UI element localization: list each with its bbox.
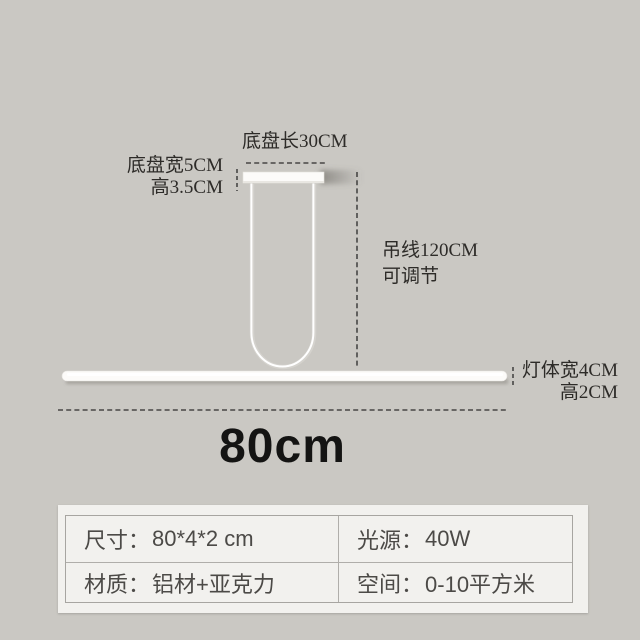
spec-light-source-value: 40W [425, 526, 470, 552]
spec-material-value: 铝材+亚克力 [152, 567, 275, 599]
spec-table: 尺寸： 80*4*2 cm 光源： 40W 材质： 铝材+亚克力 空间： 0-1… [65, 515, 573, 603]
spec-cell-space: 空间： 0-10平方米 [339, 563, 572, 602]
body-size-label-group: 灯体宽4CM 高2CM [522, 360, 618, 404]
total-length-label: 80cm [160, 419, 405, 474]
spec-panel: 尺寸： 80*4*2 cm 光源： 40W 材质： 铝材+亚克力 空间： 0-1… [58, 505, 588, 613]
wire-length-label: 吊线120CM [382, 238, 478, 264]
wire-label-group: 吊线120CM 可调节 [382, 238, 478, 290]
spec-space-label: 空间： [357, 567, 423, 599]
base-width-label: 底盘宽5CM [127, 155, 223, 177]
spec-space-value: 0-10平方米 [425, 567, 535, 599]
spec-size-value: 80*4*2 cm [152, 526, 254, 552]
base-height-label: 高3.5CM [127, 177, 223, 199]
wire-adjust-label: 可调节 [382, 264, 478, 290]
suspension-cord-shadow [252, 184, 314, 367]
body-height-label: 高2CM [522, 382, 618, 404]
spec-cell-material: 材质： 铝材+亚克力 [66, 563, 339, 602]
lamp-bar-highlight [67, 373, 503, 376]
spec-cell-light-source: 光源： 40W [339, 516, 572, 563]
product-dimension-image: 底盘长30CM 底盘宽5CM 高3.5CM 吊线120CM 可调节 灯体宽4CM… [0, 0, 640, 640]
body-width-label: 灯体宽4CM [522, 360, 618, 382]
ceiling-plate-edge [243, 181, 324, 183]
base-length-label: 底盘长30CM [242, 131, 348, 153]
ceiling-plate-shadow [320, 170, 362, 184]
suspension-cord [251, 184, 313, 367]
spec-cell-size: 尺寸： 80*4*2 cm [66, 516, 339, 563]
base-size-label-group: 底盘宽5CM 高3.5CM [127, 155, 223, 199]
spec-light-source-label: 光源： [357, 523, 423, 555]
spec-size-label: 尺寸： [84, 523, 150, 555]
spec-material-label: 材质： [84, 567, 150, 599]
